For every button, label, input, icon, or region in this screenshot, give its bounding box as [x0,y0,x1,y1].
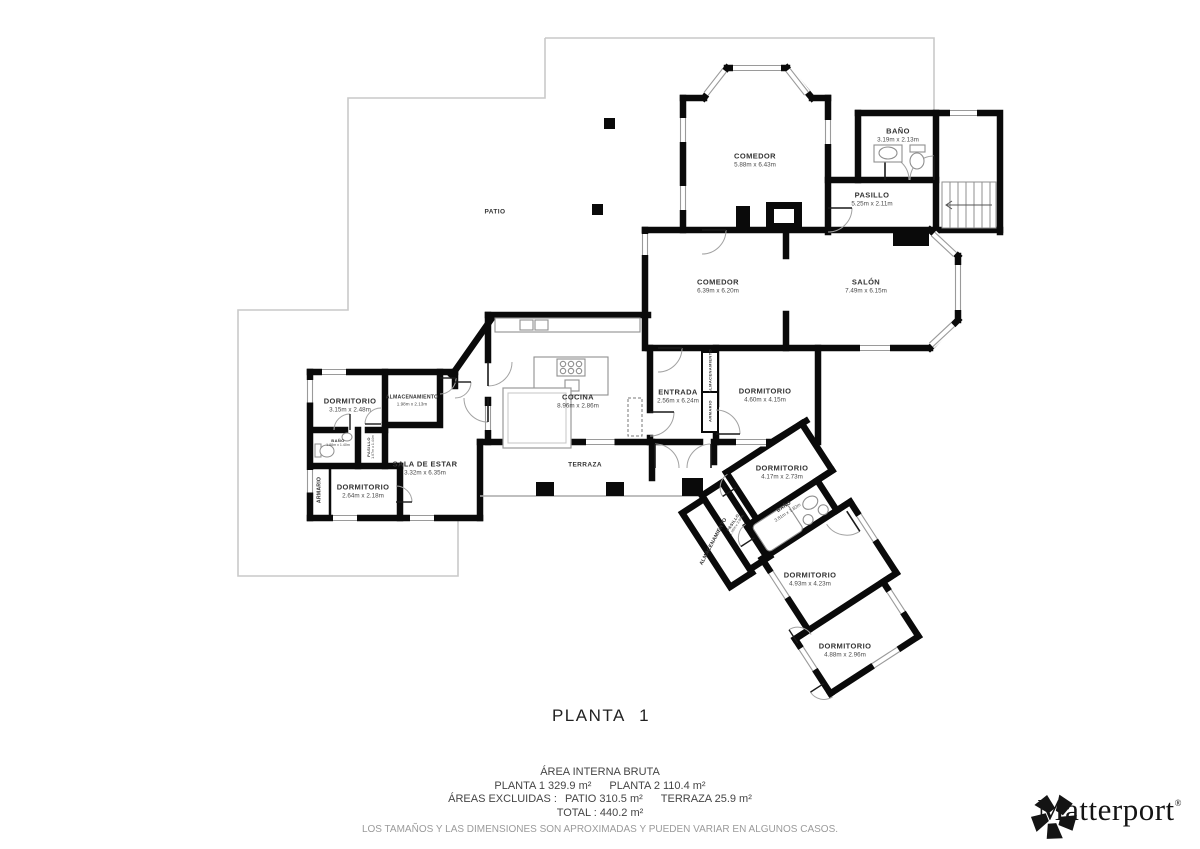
closet-label-entrada-armario: ARMARIO [707,400,712,422]
disclaimer-text: LOS TAMAÑOS Y LAS DIMENSIONES SON APROXI… [0,823,1200,837]
room-label-salon: SALÓN 7.49m x 6.15m [845,278,887,297]
room-label-dormitorio-izq-2: DORMITORIO 2.64m x 2.18m [337,483,390,502]
registered-mark: ® [1175,798,1182,808]
room-label-dormitorio-izq-1: DORMITORIO 3.15m x 2.48m [324,397,377,416]
room-label-almacenamiento-izq: ALMACENAMIENTO 1.98m x 2.13m [386,394,439,407]
summary-area-title: ÁREA INTERNA BRUTA [0,766,1200,780]
summary-excluidas: ÁREAS EXCLUIDAS :PATIO 310.5 m²TERRAZA 2… [0,793,1200,807]
summary-patio-area: PATIO 310.5 m² [565,793,643,805]
summary-planta2: PLANTA 2 110.4 m² [609,780,705,792]
room-label-dormitorio-wing-2: DORMITORIO 4.93m x 4.23m [784,571,837,590]
summary-planta1: PLANTA 1 329.9 m² [494,780,591,792]
staircase [942,182,996,228]
terraza-label: TERRAZA [568,462,602,471]
summary-terraza-area: TERRAZA 25.9 m² [661,793,752,805]
area-summary: ÁREA INTERNA BRUTA PLANTA 1 329.9 m²PLAN… [0,766,1200,837]
room-label-dormitorio-principal: DORMITORIO 4.60m x 4.15m [739,387,792,406]
room-label-comedor-superior: COMEDOR 5.88m x 6.43m [734,152,776,171]
patio-label: PATIO [485,209,506,218]
room-label-pasillo-superior: PASILLO 5.25m x 2.11m [851,191,892,210]
summary-excluidas-label: ÁREAS EXCLUIDAS : [448,793,557,805]
room-label-dormitorio-wing-3: DORMITORIO 4.88m x 2.96m [819,642,872,661]
room-label-cocina: COCINA 8.96m x 2.86m [557,393,599,412]
room-label-comedor: COMEDOR 6.39m x 6.20m [697,278,739,297]
matterport-logo: Matterport® [1029,792,1182,828]
room-label-pasillo-izq: PASILLO 1.07m x 1.44m [366,435,376,459]
closet-label-armario-izq: ARMARIO [316,477,323,503]
floorplan-page: BAÑO 3.19m x 2.13m PASILLO 5.25m x 2.11m… [0,0,1200,849]
patio-pillars [592,118,615,215]
room-label-dormitorio-wing-1: DORMITORIO 4.17m x 2.73m [756,464,809,483]
room-label-bano-superior: BAÑO 3.19m x 2.13m [877,127,919,146]
summary-plantas: PLANTA 1 329.9 m²PLANTA 2 110.4 m² [0,780,1200,794]
room-label-sala-de-estar: SALA DE ESTAR 3.32m x 6.35m [393,460,458,479]
closet-label-entrada-almacenamiento: ALMACENAMIENTO [707,349,712,393]
room-label-entrada: ENTRADA 2.56m x 6.24m [657,388,699,407]
page-title: PLANTA 1 [552,706,650,726]
room-label-bano-izq: BAÑO 1.88m x 1.40m [326,438,350,448]
matterport-logo-icon [1029,792,1079,842]
summary-total: TOTAL : 440.2 m² [0,807,1200,821]
